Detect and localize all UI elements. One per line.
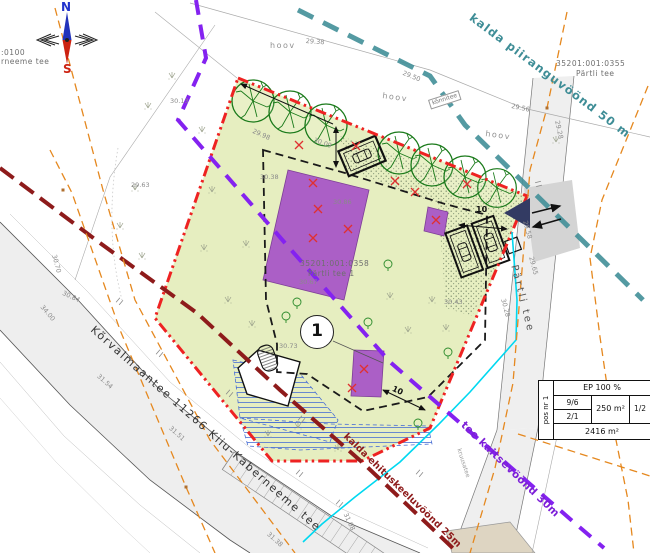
ep-label: EP 100 % [554, 381, 650, 396]
map-label-elev: 34.00 [39, 304, 56, 322]
compass-south-label: S [63, 62, 72, 76]
map-label-hoov: hoov [270, 42, 296, 50]
map-label-elev: 31.54 [96, 373, 114, 390]
map-label-elev: 31.51 [168, 425, 186, 442]
pos-number-label: pos nr 1 [542, 389, 550, 431]
map-label-elev: 29.28 [554, 120, 564, 140]
map-label-elev: 29.50 [402, 70, 422, 83]
compass-north-label: N [61, 0, 71, 14]
map-label-elev: 31.38 [266, 531, 284, 548]
map-label-elev: 30.84 [61, 290, 81, 304]
map-label-cad: 35201:001:0355 [556, 60, 625, 68]
site-plan-page: 29.3829.5029.5630.1329.6330.3830.8630.43… [0, 0, 650, 553]
spec-table-mid-row: 9/6 2/1 250 m² 1/2 [554, 396, 650, 424]
map-label-dim: 10 [476, 206, 487, 214]
storeys-b: 2/1 [554, 410, 591, 423]
map-label-elev: 30.73 [279, 343, 298, 350]
map-label-elev: 30.09 [313, 137, 333, 149]
spec-table-pos-column: pos nr 1 [539, 381, 554, 439]
map-label-dim: 10 [391, 385, 404, 397]
map-label-layer: 29.3829.5029.5630.1329.6330.3830.8630.43… [0, 0, 650, 553]
map-label-elev: 30.28 [500, 298, 511, 318]
building-area-cell: 250 m² [592, 396, 630, 423]
map-label-elev: 29.38 [306, 38, 325, 46]
spec-table-main: EP 100 % 9/6 2/1 250 m² 1/2 2416 m² [554, 381, 650, 439]
spec-table: pos nr 1 EP 100 % 9/6 2/1 250 m² 1/2 241… [538, 380, 650, 440]
map-label-elev: 30.67 [299, 279, 318, 286]
map-label-elev: 30.38 [260, 174, 279, 181]
map-label-hoov: hoov [485, 130, 511, 141]
plot-area-cell: 2416 m² [554, 424, 650, 439]
map-label-hoov: hoov [382, 92, 408, 103]
map-label-elev: 30.43 [444, 299, 463, 306]
map-label-elev: 29.58 [522, 220, 533, 240]
map-label-elev: 29.63 [131, 182, 150, 189]
map-label-maroon: kalda ehituskeeluvöönd 25m [341, 432, 462, 550]
map-label-elev: 29.65 [528, 256, 539, 276]
position-number-badge: 1 [300, 315, 334, 349]
map-label-cad: :0100 [1, 49, 25, 57]
map-label-elev: 31.08 [342, 512, 356, 532]
map-label-elev: 29.56 [511, 103, 531, 113]
map-label-elev: 29.98 [251, 128, 271, 142]
storeys-a: 9/6 [554, 396, 591, 410]
map-label-cad: rneeme tee [1, 58, 49, 66]
map-label-roadname: Kõrvalmaantee 11266 Kiiu-Kaberneeme tee [89, 324, 323, 533]
map-label-box: kõnnitee [428, 90, 461, 109]
storeys-cell: 9/6 2/1 [554, 396, 592, 423]
map-label-elev: 30.13 [170, 98, 189, 105]
map-label-tiny: kruusatee [455, 448, 470, 478]
map-label-cad: Pärtli tee 1 [308, 270, 355, 278]
map-label-elev: 30.70 [51, 254, 62, 274]
map-label-cad: Pärtli tee [576, 70, 615, 78]
map-label-cad: 35201:001:0358 [300, 260, 369, 268]
map-label-elev: 30.86 [333, 199, 352, 206]
ratio-cell: 1/2 [630, 396, 650, 423]
